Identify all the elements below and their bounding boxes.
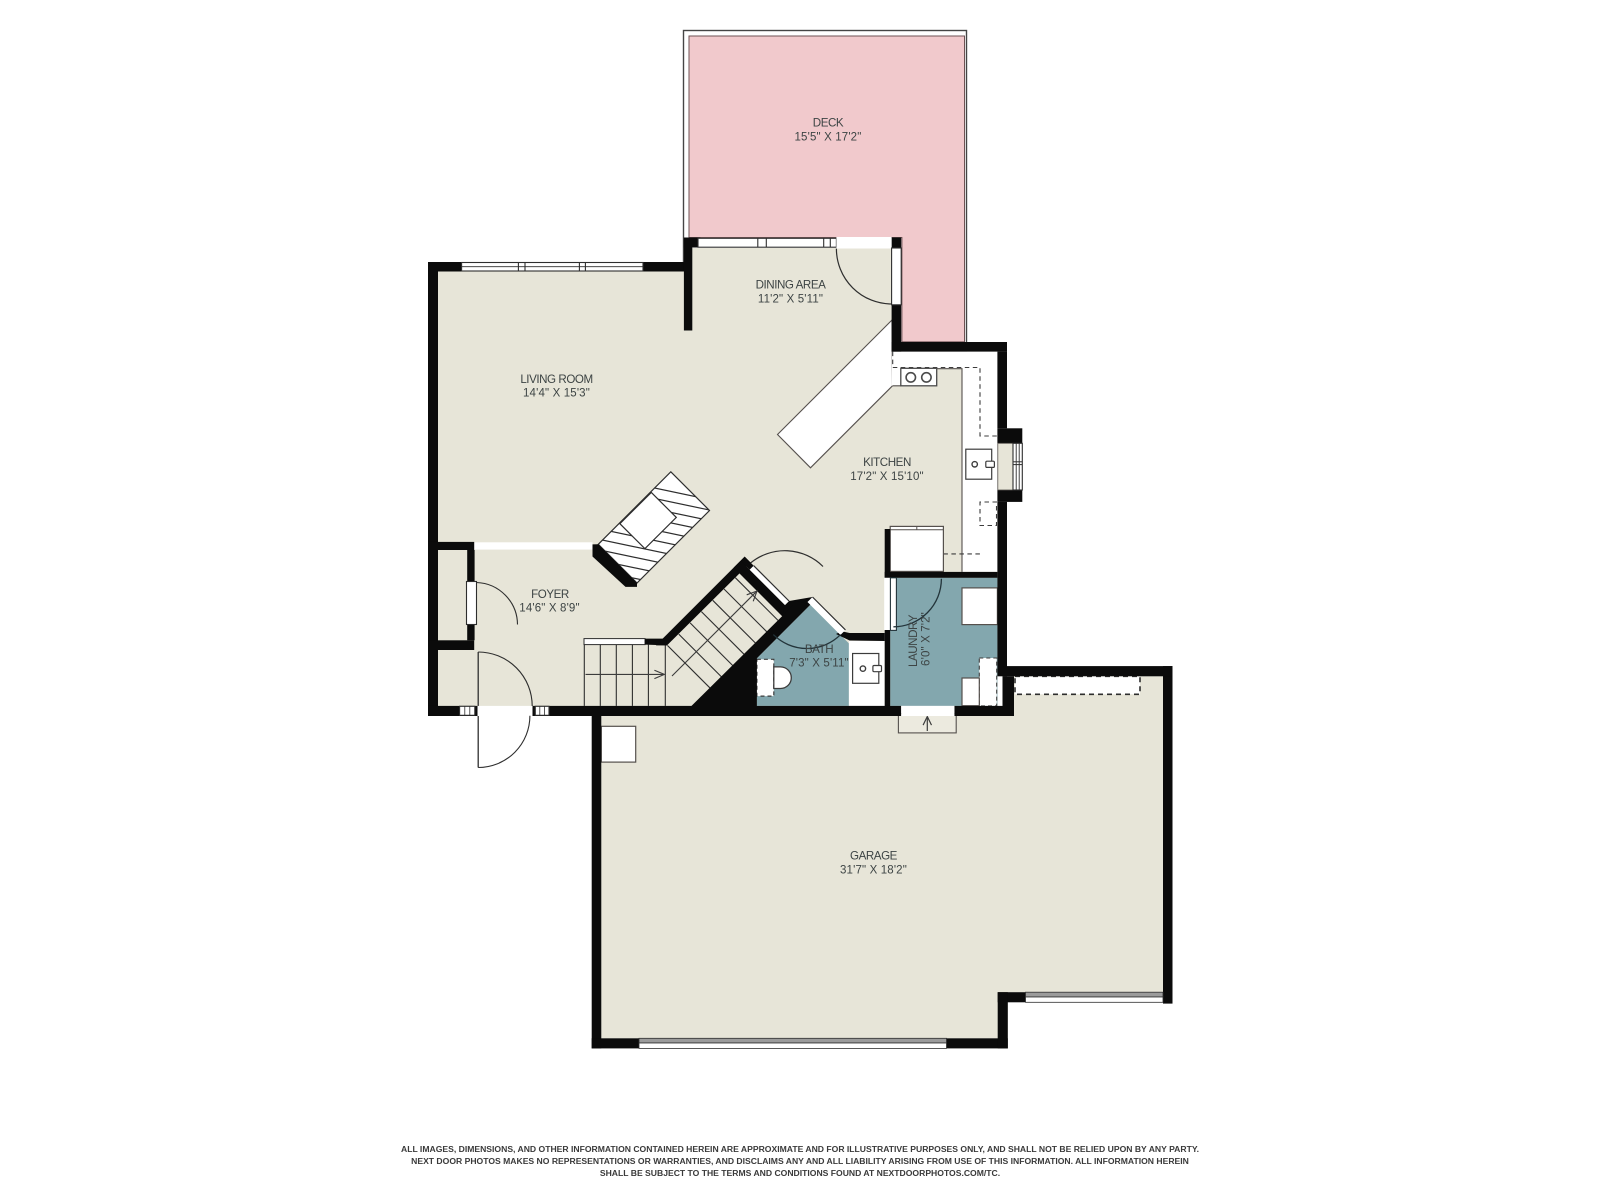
svg-text:14'4" X 15'3": 14'4" X 15'3" [523,387,590,399]
svg-text:DECK: DECK [813,117,844,130]
svg-text:7'3" X 5'11": 7'3" X 5'11" [789,657,849,669]
svg-text:11'2" X 5'11": 11'2" X 5'11" [758,293,823,305]
svg-text:SHALL BE SUBJECT TO THE TERMS: SHALL BE SUBJECT TO THE TERMS AND CONDIT… [600,1168,1000,1178]
svg-text:KITCHEN: KITCHEN [863,456,911,469]
svg-text:17'2" X 15'10": 17'2" X 15'10" [850,471,924,483]
svg-text:31'7" X 18'2": 31'7" X 18'2" [840,865,907,877]
svg-text:6'0" X 7'2": 6'0" X 7'2" [921,612,933,666]
svg-text:DINING AREA: DINING AREA [756,279,826,292]
svg-text:FOYER: FOYER [531,588,569,601]
svg-text:LIVING ROOM: LIVING ROOM [520,373,592,386]
svg-text:LAUNDRY: LAUNDRY [907,614,920,667]
svg-text:GARAGE: GARAGE [850,850,898,863]
svg-text:BATH: BATH [805,643,833,656]
svg-text:14'6" X 8'9": 14'6" X 8'9" [519,603,579,615]
svg-text:ALL IMAGES, DIMENSIONS, AND OT: ALL IMAGES, DIMENSIONS, AND OTHER INFORM… [401,1144,1199,1154]
svg-text:15'5" X 17'2": 15'5" X 17'2" [795,132,862,144]
svg-text:NEXT DOOR PHOTOS MAKES NO REPR: NEXT DOOR PHOTOS MAKES NO REPRESENTATION… [411,1156,1189,1166]
